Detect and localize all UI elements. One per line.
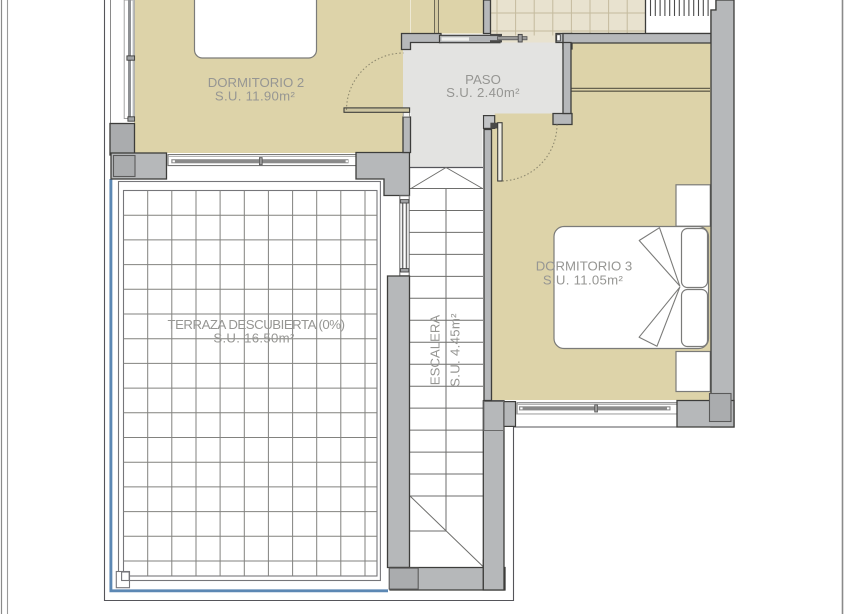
- svg-text:S.U. 16.50m²: S.U. 16.50m²: [213, 331, 295, 346]
- svg-text:S.U. 11.05m²: S.U. 11.05m²: [543, 273, 624, 288]
- svg-text:ESCALERA: ESCALERA: [428, 315, 443, 386]
- svg-text:DORMITORIO 3: DORMITORIO 3: [536, 259, 632, 274]
- svg-text:S.U. 2.40m²: S.U. 2.40m²: [446, 85, 520, 100]
- svg-text:S.U. 11.90m²: S.U. 11.90m²: [215, 89, 296, 104]
- svg-text:S.U. 4.45m²: S.U. 4.45m²: [448, 313, 463, 387]
